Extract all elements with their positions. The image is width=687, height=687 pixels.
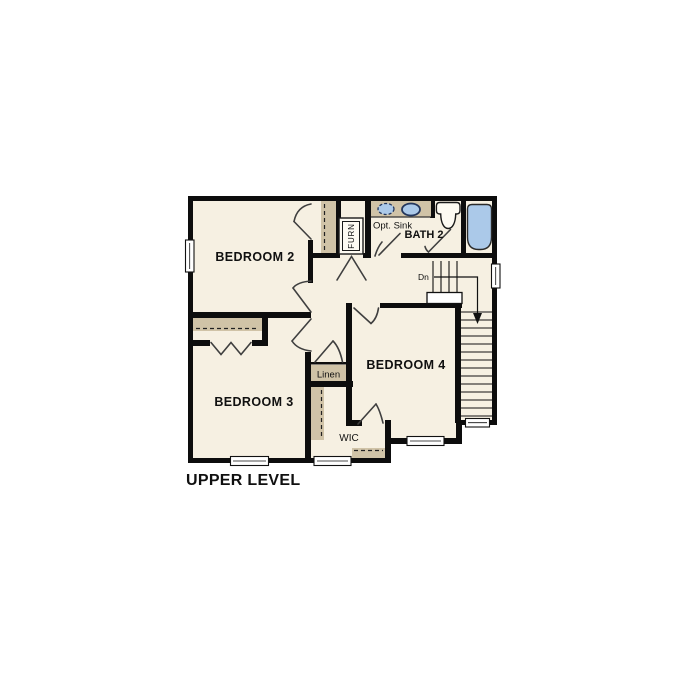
label-furnace: FURN	[347, 223, 356, 248]
label-wic: WIC	[339, 433, 358, 444]
bedroom4-window	[407, 437, 444, 446]
plan-title: UPPER LEVEL	[186, 472, 300, 489]
room-label-bedroom4: BEDROOM 4	[366, 358, 445, 372]
bedroom2-window	[186, 240, 195, 272]
floor-plan-page: BEDROOM 2 BEDROOM 3 BEDROOM 4 BATH 2 Opt…	[0, 0, 687, 687]
floor-plan: BEDROOM 2 BEDROOM 3 BEDROOM 4 BATH 2 Opt…	[0, 0, 687, 687]
wic-window	[314, 457, 351, 466]
room-label-bedroom2: BEDROOM 2	[215, 250, 294, 264]
optional-sink	[378, 204, 394, 215]
bedroom2-closet-shelf	[321, 201, 336, 253]
stair-landing	[427, 293, 462, 304]
stairwell-side-window	[492, 264, 501, 288]
wic-shelf-bottom	[352, 448, 385, 458]
room-label-bedroom3: BEDROOM 3	[214, 395, 293, 409]
bathtub	[468, 205, 492, 250]
label-linen: Linen	[317, 370, 340, 381]
label-stairs-down: Dn	[418, 272, 429, 282]
bedroom3-window	[231, 457, 269, 466]
sink	[402, 204, 420, 216]
stairwell-bottom-window	[466, 419, 490, 428]
label-optional-sink: Opt. Sink	[373, 221, 412, 232]
